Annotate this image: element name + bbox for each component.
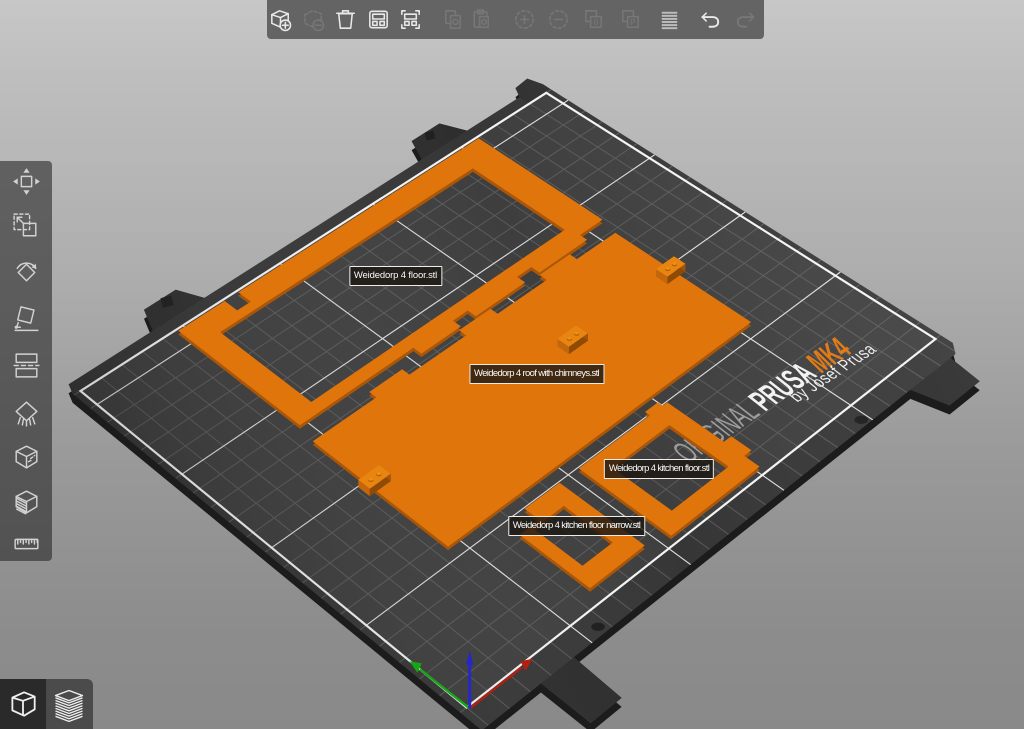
svg-text:P: P	[630, 18, 636, 27]
svg-text:0: 0	[594, 18, 599, 27]
